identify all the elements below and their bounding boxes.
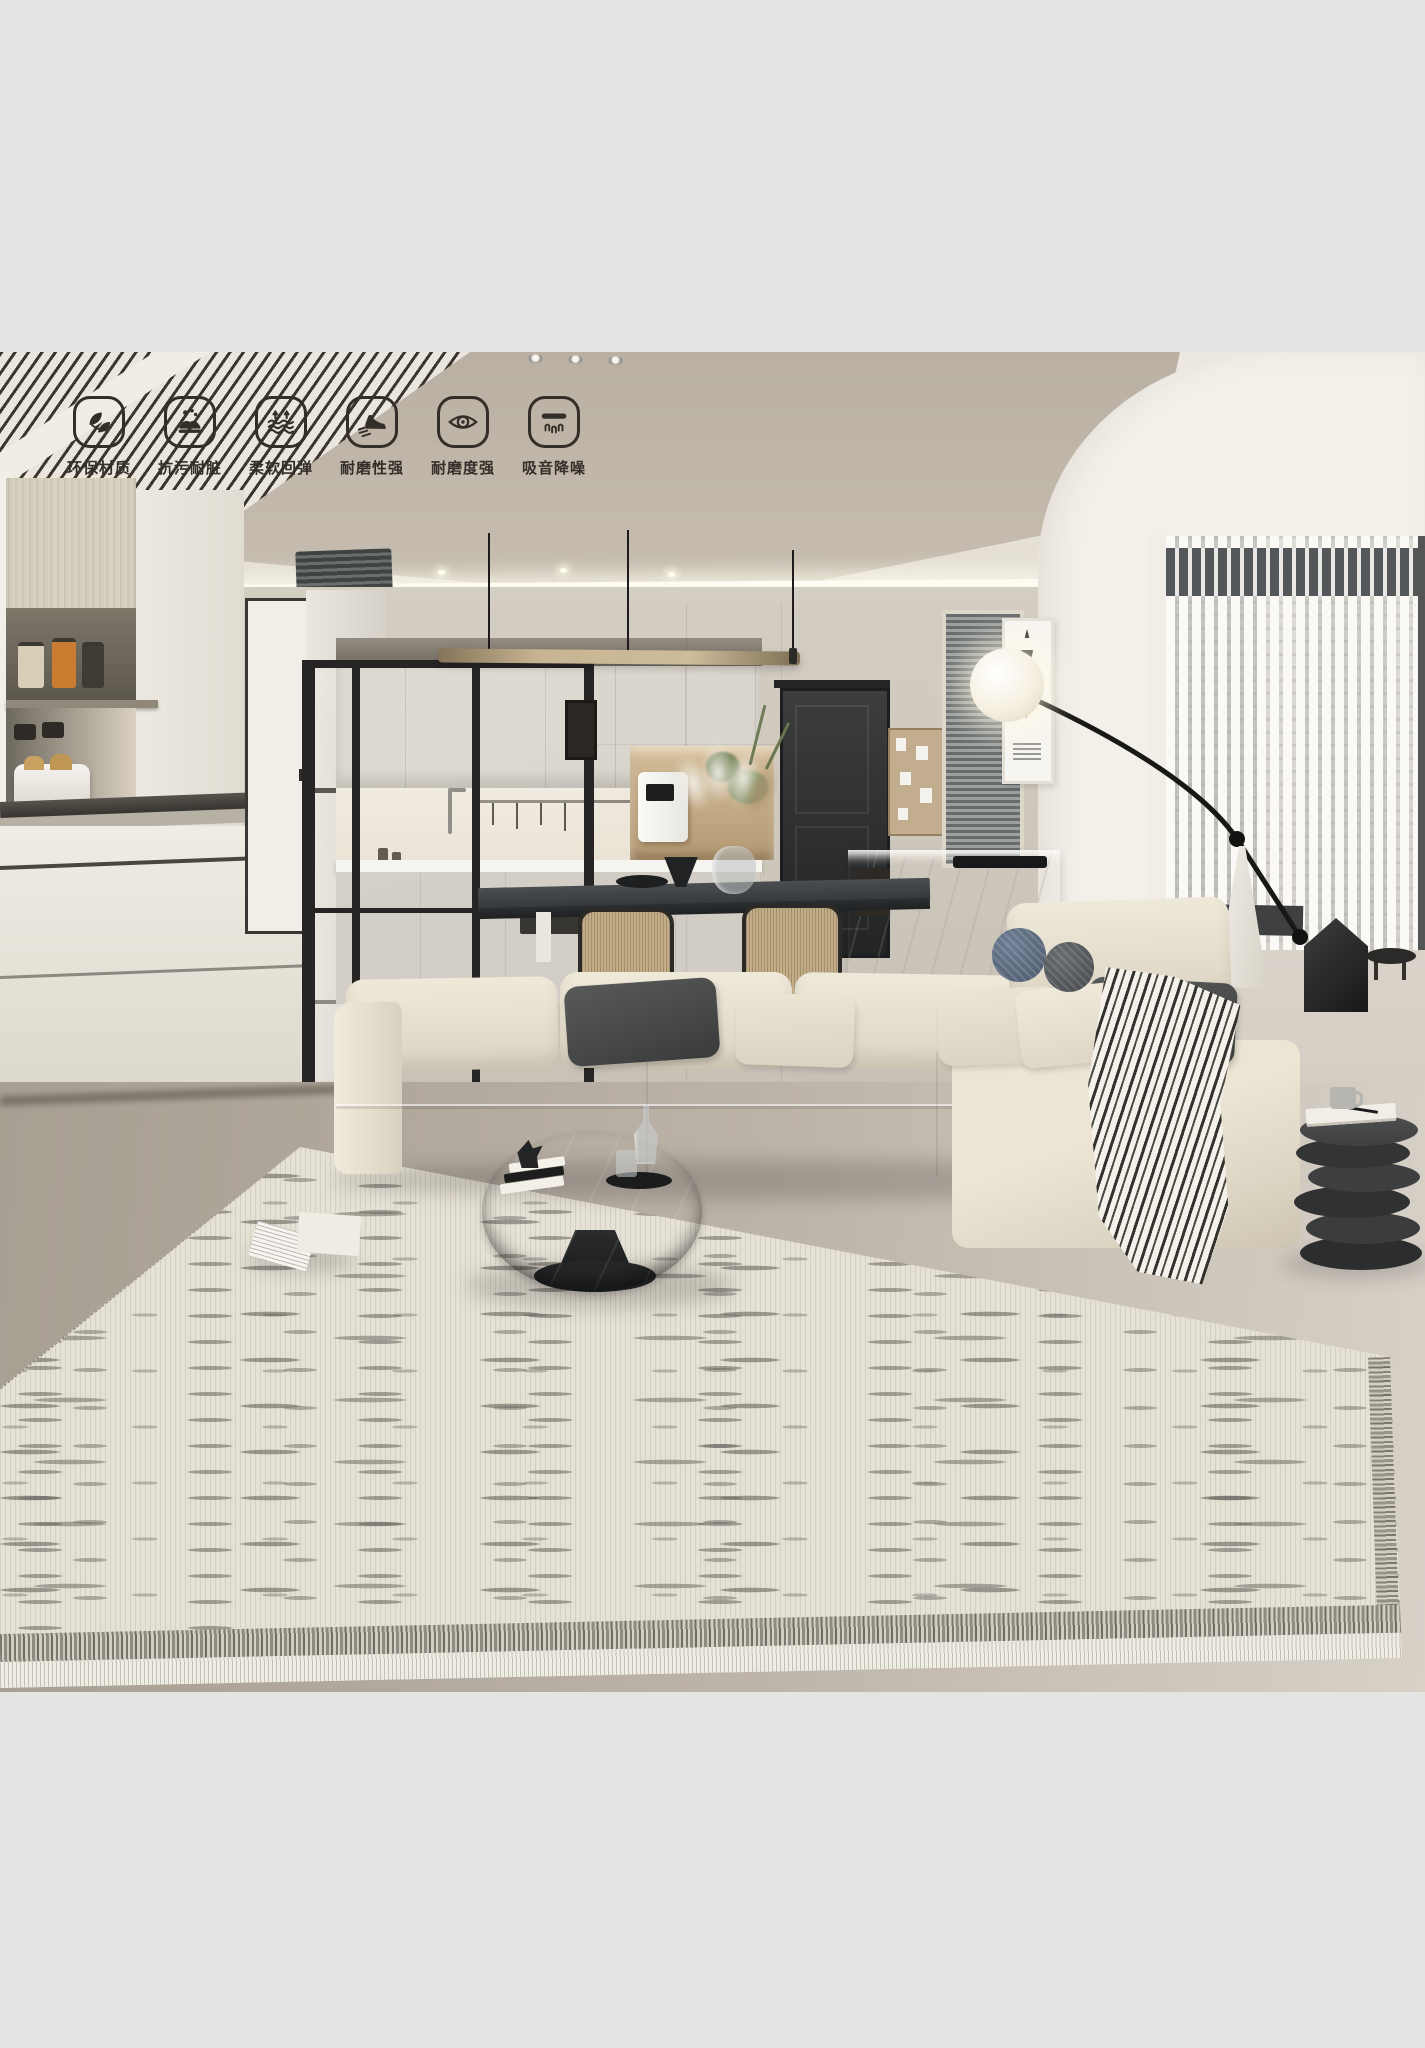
- feature-soft-rebound: 柔软回弹: [254, 396, 308, 478]
- mini-stool: [1366, 948, 1416, 964]
- open-shelf: [6, 700, 158, 708]
- moodboard-card: [896, 738, 906, 751]
- blue-ball-pillow: [992, 928, 1046, 982]
- recessed-pin-light: [668, 572, 675, 577]
- sound-absorb-icon: [528, 396, 580, 448]
- glass-jar-dark: [82, 642, 104, 688]
- ceiling-spotlight: [528, 354, 543, 363]
- feature-durability: 耐磨度强: [436, 396, 490, 478]
- art-text-block: [1013, 743, 1041, 763]
- door-architrave: [774, 680, 890, 688]
- feature-label: 吸音降噪: [516, 457, 592, 478]
- feature-label: 耐磨性强: [334, 457, 410, 478]
- island-sink: [953, 856, 1047, 868]
- wall-outlet: [42, 722, 64, 738]
- water-dispenser-screen: [646, 784, 674, 801]
- feature-wear-resistant: 耐磨性强: [345, 396, 399, 478]
- ceiling-spotlight: [608, 356, 623, 365]
- living-room-photo: 环保材质 抗污耐脏: [0, 352, 1425, 1692]
- feature-noise-reduction: 吸音降噪: [527, 396, 581, 478]
- dining-table-leg: [536, 912, 551, 962]
- coffee-mug: [1330, 1087, 1356, 1109]
- feature-stain-resistant: 抗污耐脏: [163, 396, 217, 478]
- lamp-globe: [970, 648, 1044, 722]
- moodboard-card: [920, 788, 932, 803]
- recessed-pin-light: [560, 568, 567, 573]
- round-coffee-table: [482, 1132, 702, 1292]
- cream-pillow: [735, 992, 855, 1068]
- feature-label: 耐磨度强: [425, 457, 501, 478]
- window-frame: [1418, 536, 1425, 968]
- moodboard-card: [916, 746, 928, 760]
- pendant-bulb: [789, 648, 797, 664]
- stain-resistant-icon: [164, 396, 216, 448]
- glass-vase: [712, 846, 756, 894]
- black-bowl: [616, 875, 668, 888]
- gray-ball-pillow: [1044, 942, 1094, 992]
- dark-pillow: [563, 977, 720, 1067]
- feature-label: 抗污耐脏: [152, 457, 228, 478]
- open-book-page: [297, 1212, 362, 1256]
- glass-jar: [18, 642, 44, 688]
- soft-rebound-icon: [255, 396, 307, 448]
- door-panel: [795, 705, 869, 814]
- glass-cup: [616, 1150, 637, 1177]
- pendant-wire: [488, 533, 490, 651]
- wall-outlet: [14, 724, 36, 740]
- glass-jar-orange: [52, 638, 76, 688]
- feature-label: 柔软回弹: [243, 457, 319, 478]
- vertical-blinds-header: [1166, 548, 1425, 596]
- feature-label: 环保材质: [61, 457, 137, 478]
- product-image-canvas: 环保材质 抗污耐脏: [0, 0, 1425, 2048]
- moodboard-card: [900, 772, 911, 785]
- feature-badges: 环保材质 抗污耐脏: [72, 396, 581, 478]
- durable-eye-icon: [437, 396, 489, 448]
- leaf-icon: [73, 396, 125, 448]
- pendant-wire: [627, 530, 629, 651]
- feature-eco-material: 环保材质: [72, 396, 126, 478]
- moodboard: [888, 728, 944, 836]
- pendant-wire: [792, 550, 794, 650]
- wear-resistant-shoe-icon: [346, 396, 398, 448]
- ceiling-spotlight: [568, 355, 583, 364]
- small-framed-art: [565, 700, 597, 760]
- moodboard-card: [898, 808, 908, 820]
- stool-leg: [1374, 960, 1378, 980]
- white-interior-door: [245, 598, 309, 934]
- recessed-pin-light: [438, 570, 445, 575]
